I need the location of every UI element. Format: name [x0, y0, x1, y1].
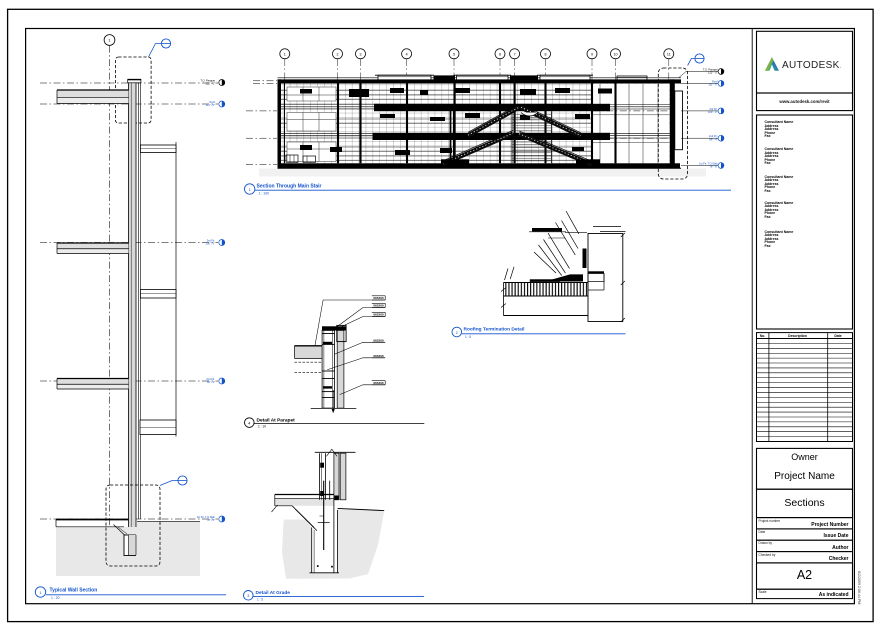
- svg-text:122' - 0": 122' - 0": [206, 82, 216, 86]
- svg-text:8: 8: [545, 52, 547, 56]
- svg-text:Typical Wall Section: Typical Wall Section: [50, 588, 98, 594]
- svg-text:Date: Date: [834, 334, 841, 338]
- svg-text:78' - 8": 78' - 8": [207, 518, 215, 522]
- svg-text:1 : 20: 1 : 20: [51, 596, 60, 600]
- svg-text:065200: 065200: [373, 381, 384, 385]
- svg-text:122' - 0": 122' - 0": [708, 71, 718, 75]
- svg-text:5: 5: [453, 52, 455, 56]
- svg-text:6: 6: [499, 52, 501, 56]
- svg-text:4: 4: [406, 52, 408, 56]
- svg-text:065200: 065200: [373, 354, 384, 358]
- svg-text:89' - 4": 89' - 4": [709, 137, 717, 141]
- svg-text:Roofing Termination Detail: Roofing Termination Detail: [464, 327, 525, 333]
- svg-text:11: 11: [667, 52, 671, 56]
- svg-text:Detail At Parapet: Detail At Parapet: [257, 417, 296, 423]
- svg-text:111' - 0": 111' - 0": [708, 83, 717, 87]
- svg-text:065200: 065200: [373, 338, 384, 342]
- svg-text:1: 1: [284, 52, 286, 56]
- svg-text:9: 9: [591, 52, 593, 56]
- svg-text:065200: 065200: [373, 313, 384, 317]
- svg-text:100' - 0": 100' - 0": [708, 110, 718, 114]
- svg-text:1 : 5: 1 : 5: [465, 335, 471, 339]
- svg-text:Detail At Grade: Detail At Grade: [256, 590, 291, 596]
- svg-text:78' - 8": 78' - 8": [709, 165, 717, 169]
- svg-text:111' - 0": 111' - 0": [206, 103, 215, 107]
- svg-text:100' - 0": 100' - 0": [206, 242, 216, 246]
- svg-text:1 : 5: 1 : 5: [257, 597, 263, 601]
- svg-text:10: 10: [614, 52, 618, 56]
- svg-text:No.: No.: [760, 334, 766, 338]
- svg-text:7: 7: [514, 52, 516, 56]
- svg-text:2: 2: [337, 52, 339, 56]
- svg-text:065200: 065200: [373, 296, 384, 300]
- svg-text:1 : 100: 1 : 100: [259, 191, 269, 195]
- svg-text:065200: 065200: [373, 304, 384, 308]
- svg-text:Section Through Main Stair: Section Through Main Stair: [257, 183, 322, 189]
- svg-text:89' - 4": 89' - 4": [207, 380, 215, 384]
- svg-text:Description: Description: [788, 334, 807, 338]
- svg-text:1 : 10: 1 : 10: [258, 425, 266, 429]
- svg-text:3: 3: [360, 52, 362, 56]
